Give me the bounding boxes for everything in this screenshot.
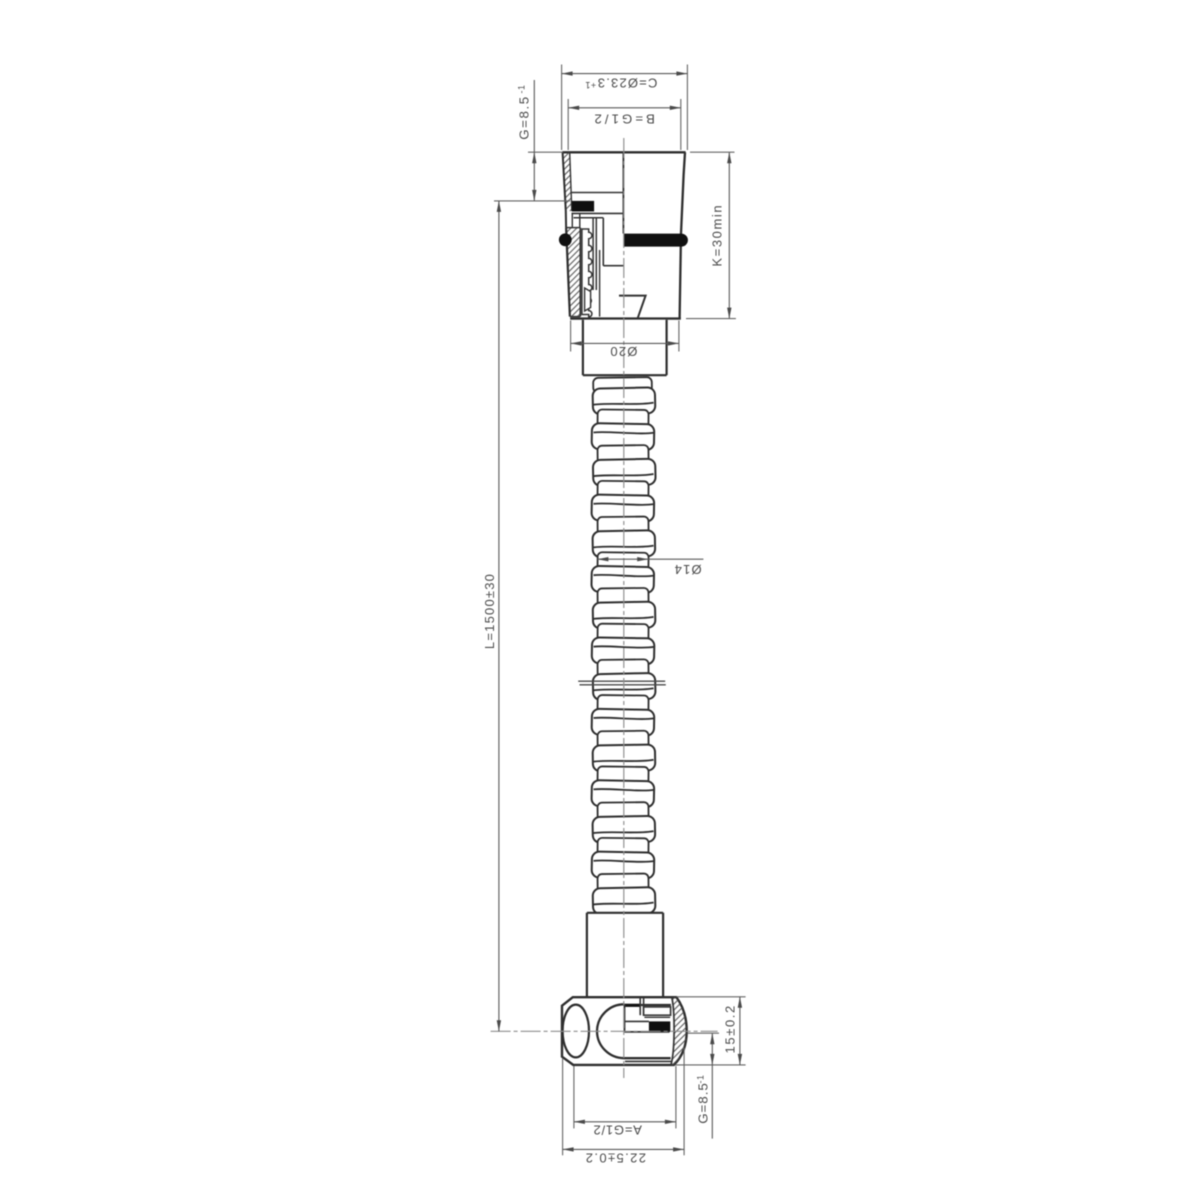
svg-text:15±0.2: 15±0.2 [723,1004,738,1053]
svg-text:-1: -1 [517,84,527,93]
svg-text:G=8.5: G=8.5 [517,95,532,140]
svg-text:Ø20: Ø20 [609,344,637,359]
svg-text:+1: +1 [585,80,596,90]
svg-text:L=1500±30: L=1500±30 [482,573,497,649]
svg-text:Ø14: Ø14 [674,562,702,577]
svg-text:K=30min: K=30min [709,204,724,267]
svg-text:G=8.5: G=8.5 [695,1082,710,1124]
svg-text:22.5±0.2: 22.5±0.2 [584,1151,646,1166]
svg-text:B=G1/2: B=G1/2 [591,111,654,126]
svg-text:A=G1/2: A=G1/2 [593,1122,642,1137]
svg-text:-1: -1 [695,1074,705,1083]
svg-text:C=Ø23.3: C=Ø23.3 [597,75,658,90]
